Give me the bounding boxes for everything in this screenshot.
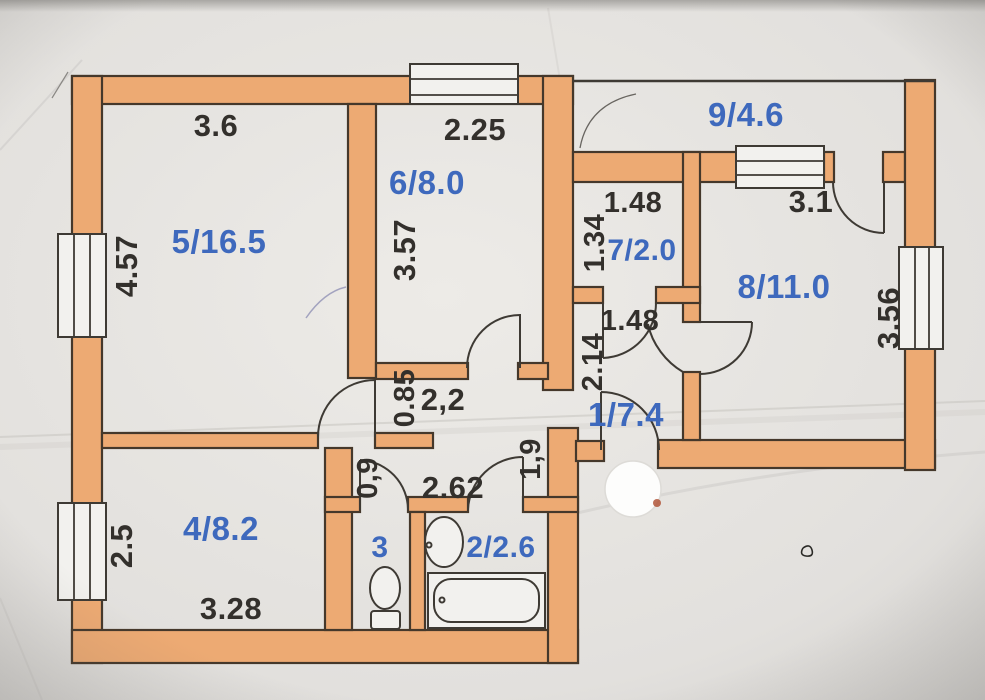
floor-plan-drawing: 3.6 2.25 4.57 3.57 1.48 1.34 3.1 3.56 1.…	[0, 0, 985, 700]
photo-vignette	[0, 0, 985, 700]
floor-plan-photo: 3.6 2.25 4.57 3.57 1.48 1.34 3.1 3.56 1.…	[0, 0, 985, 700]
